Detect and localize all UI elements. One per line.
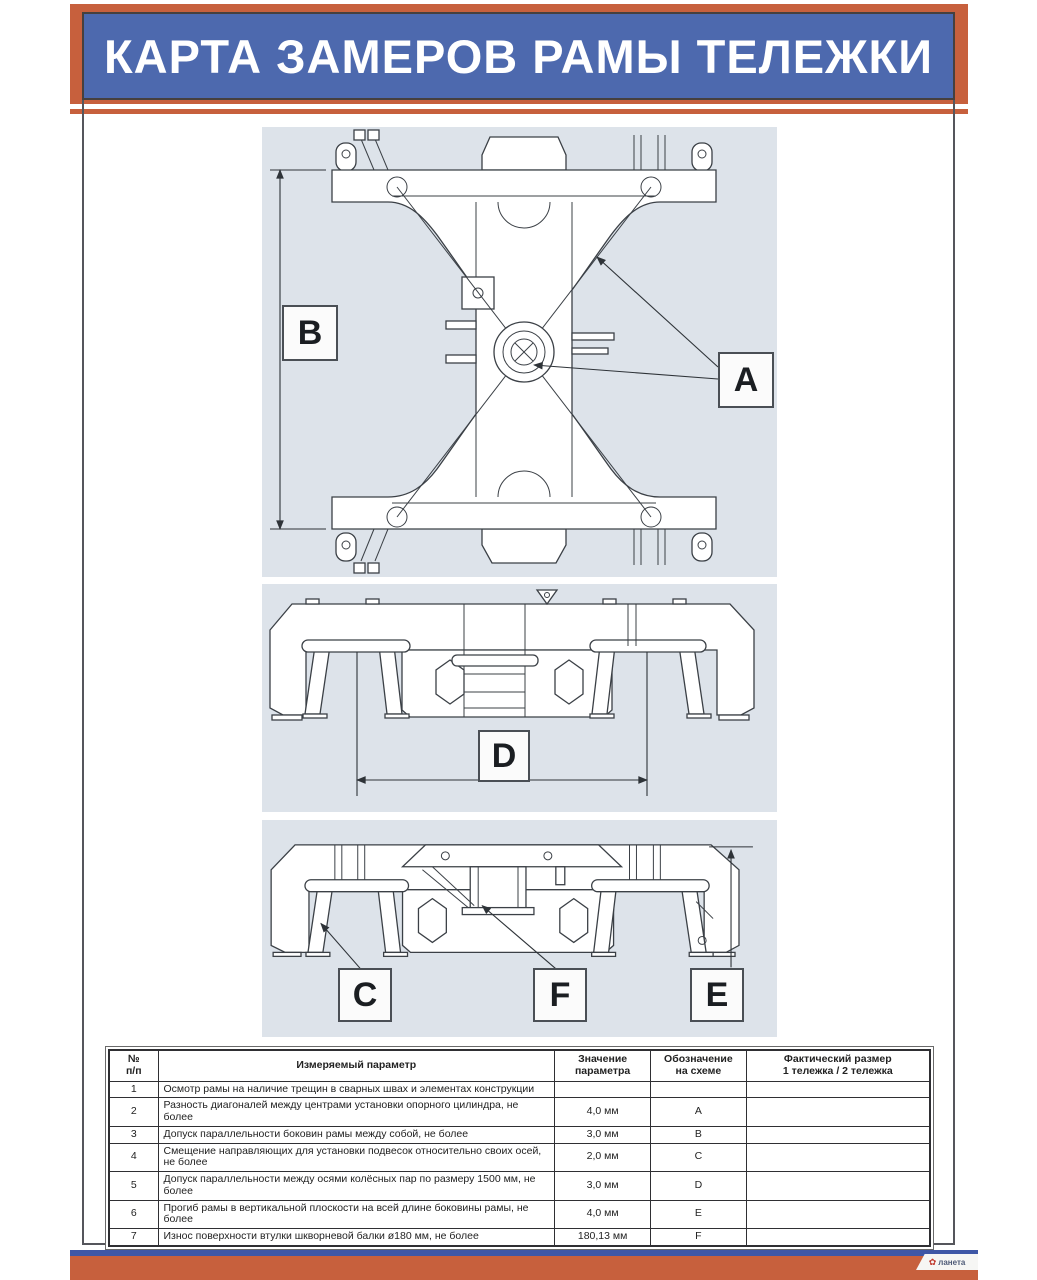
publisher-logo-icon: ✿: [929, 1258, 937, 1267]
table-row: 5 Допуск параллельности между осями колё…: [109, 1172, 930, 1201]
label-box-c: C: [338, 968, 392, 1022]
bogie-frame-plan-drawing: [262, 127, 777, 577]
row-value: 4,0 мм: [555, 1200, 651, 1229]
measurements-table-wrap: № п/п Измеряемый параметр Значение парам…: [105, 1046, 934, 1250]
label-box-f: F: [533, 968, 587, 1022]
panel-plan-view: B A: [262, 127, 777, 577]
row-param: Допуск параллельности между осями колёсн…: [158, 1172, 555, 1201]
row-num: 1: [109, 1081, 158, 1098]
row-value: 3,0 мм: [555, 1126, 651, 1143]
row-param: Износ поверхности втулки шкворневой балк…: [158, 1229, 555, 1246]
row-actual: [746, 1098, 930, 1127]
label-box-a: A: [718, 352, 774, 408]
title-box: КАРТА ЗАМЕРОВ РАМЫ ТЕЛЕЖКИ: [82, 12, 955, 100]
label-a-text: A: [734, 361, 759, 400]
row-value: [555, 1081, 651, 1098]
table-row: 1 Осмотр рамы на наличие трещин в сварны…: [109, 1081, 930, 1098]
row-actual: [746, 1200, 930, 1229]
publisher-logo-text: ланета: [938, 1258, 965, 1267]
col-header-param: Измеряемый параметр: [158, 1050, 555, 1081]
panel-side-view-cfe: C F E: [262, 820, 777, 1037]
row-value: 2,0 мм: [555, 1143, 651, 1172]
row-param: Осмотр рамы на наличие трещин в сварных …: [158, 1081, 555, 1098]
row-actual: [746, 1172, 930, 1201]
row-actual: [746, 1081, 930, 1098]
table-header-row: № п/п Измеряемый параметр Значение парам…: [109, 1050, 930, 1081]
row-value: 180,13 мм: [555, 1229, 651, 1246]
label-f-text: F: [550, 976, 571, 1015]
col-header-num: № п/п: [109, 1050, 158, 1081]
page-title: КАРТА ЗАМЕРОВ РАМЫ ТЕЛЕЖКИ: [104, 29, 933, 84]
label-d-text: D: [492, 737, 517, 776]
panel-side-view-d: D: [262, 584, 777, 812]
row-value: 4,0 мм: [555, 1098, 651, 1127]
table-row: 3 Допуск параллельности боковин рамы меж…: [109, 1126, 930, 1143]
row-designation: D: [651, 1172, 746, 1201]
table-row: 2 Разность диагоналей между центрами уст…: [109, 1098, 930, 1127]
row-num: 2: [109, 1098, 158, 1127]
top-center-cap: [482, 137, 566, 170]
table-row: 7 Износ поверхности втулки шкворневой ба…: [109, 1229, 930, 1246]
row-num: 3: [109, 1126, 158, 1143]
publisher-logo: ✿ ланета: [916, 1254, 978, 1270]
col-header-value: Значение параметра: [555, 1050, 651, 1081]
row-designation: A: [651, 1098, 746, 1127]
row-designation: [651, 1081, 746, 1098]
footer-band: [70, 1256, 978, 1280]
row-designation: F: [651, 1229, 746, 1246]
row-num: 5: [109, 1172, 158, 1201]
row-value: 3,0 мм: [555, 1172, 651, 1201]
row-param: Разность диагоналей между центрами устан…: [158, 1098, 555, 1127]
row-designation: C: [651, 1143, 746, 1172]
col-header-designation: Обозначение на схеме: [651, 1050, 746, 1081]
center-pivot: [494, 322, 554, 382]
measurements-table: № п/п Измеряемый параметр Значение парам…: [108, 1049, 931, 1247]
row-num: 7: [109, 1229, 158, 1246]
label-box-e: E: [690, 968, 744, 1022]
row-designation: B: [651, 1126, 746, 1143]
label-c-text: C: [353, 976, 378, 1015]
row-param: Допуск параллельности боковин рамы между…: [158, 1126, 555, 1143]
label-b-text: B: [298, 314, 323, 353]
col-header-actual: Фактический размер 1 тележка / 2 тележка: [746, 1050, 930, 1081]
bottom-center-cap: [482, 529, 566, 563]
table-row: 6 Прогиб рамы в вертикальной плоскости н…: [109, 1200, 930, 1229]
row-num: 4: [109, 1143, 158, 1172]
table-row: 4 Смещение направляющих для установки по…: [109, 1143, 930, 1172]
row-param: Прогиб рамы в вертикальной плоскости на …: [158, 1200, 555, 1229]
label-box-d: D: [478, 730, 530, 782]
row-param: Смещение направляющих для установки подв…: [158, 1143, 555, 1172]
row-num: 6: [109, 1200, 158, 1229]
row-actual: [746, 1126, 930, 1143]
row-actual: [746, 1143, 930, 1172]
row-designation: E: [651, 1200, 746, 1229]
label-e-text: E: [706, 976, 729, 1015]
label-box-b: B: [282, 305, 338, 361]
row-actual: [746, 1229, 930, 1246]
